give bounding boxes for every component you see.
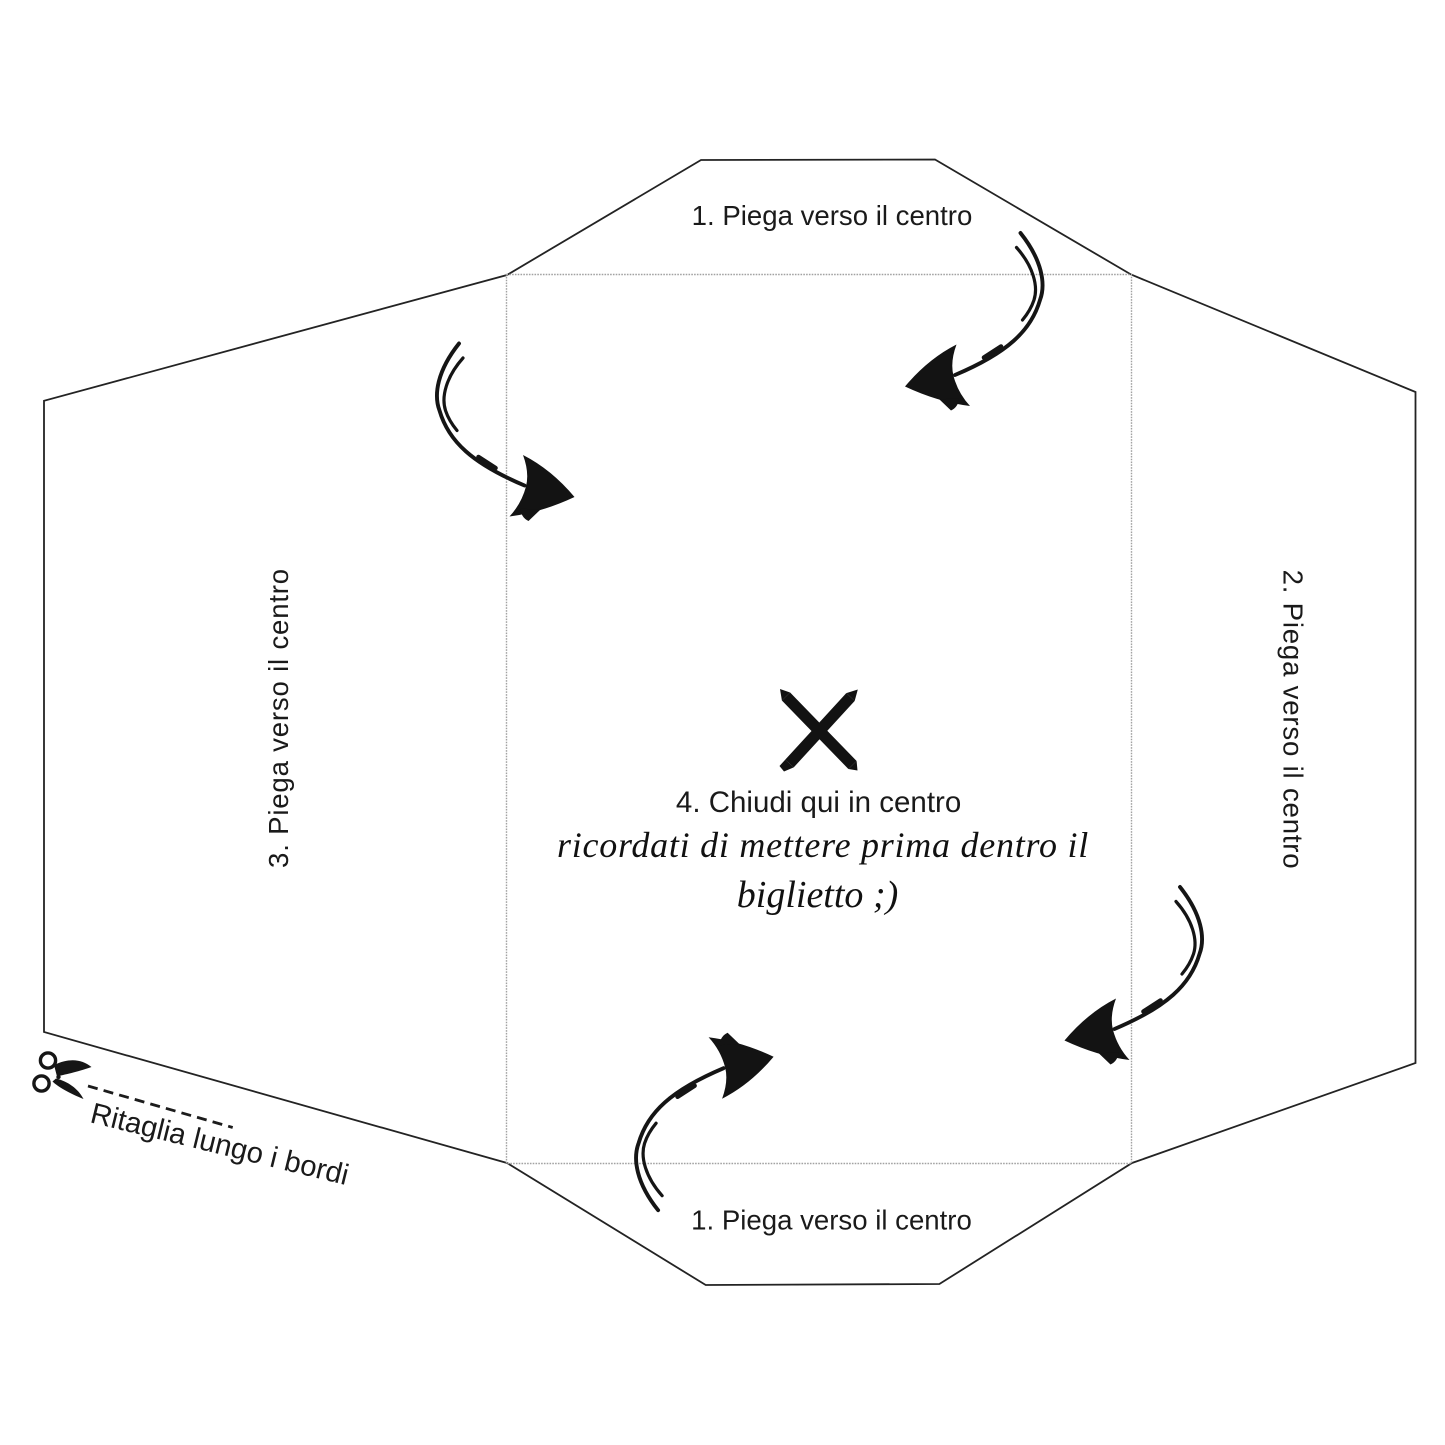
svg-text:1. Piega verso il centro: 1. Piega verso il centro xyxy=(692,200,973,231)
svg-text:2. Piega verso il centro: 2. Piega verso il centro xyxy=(1278,570,1309,870)
svg-text:4. Chiudi qui in centro: 4. Chiudi qui in centro xyxy=(676,786,961,819)
svg-text:ricordati di mettere prima den: ricordati di mettere prima dentro il xyxy=(557,825,1089,865)
svg-text:biglietto ;): biglietto ;) xyxy=(737,874,898,916)
svg-text:1. Piega verso il centro: 1. Piega verso il centro xyxy=(691,1205,972,1236)
svg-text:Ritaglia lungo i bordi: Ritaglia lungo i bordi xyxy=(87,1098,351,1192)
svg-text:3. Piega verso il centro: 3. Piega verso il centro xyxy=(263,568,294,868)
